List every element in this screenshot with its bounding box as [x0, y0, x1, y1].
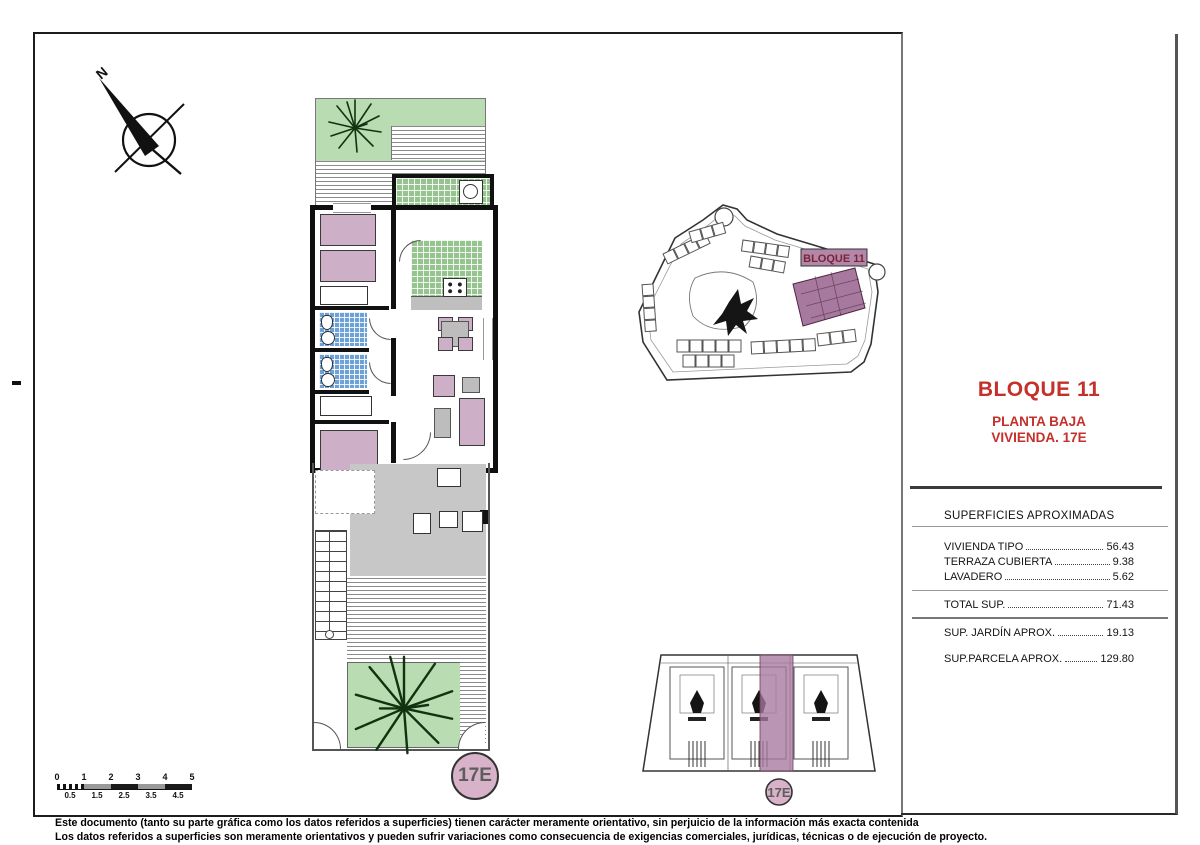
- agave-plant-icon: [349, 650, 459, 760]
- compass-north-label: N: [93, 64, 111, 83]
- wall: [315, 348, 369, 352]
- palm-tree-icon: [323, 94, 387, 158]
- scale-label: 3.5: [145, 791, 156, 800]
- floor-plan: 17E: [307, 90, 499, 806]
- scale-label: 2.5: [118, 791, 129, 800]
- wall: [391, 205, 396, 309]
- surface-label: TOTAL SUP.: [944, 599, 1005, 611]
- surface-value: 5.62: [1113, 571, 1134, 583]
- surface-row: TOTAL SUP. 71.43: [944, 599, 1134, 614]
- chair: [438, 337, 453, 351]
- stair-post: [325, 630, 334, 639]
- surface-row: TERRAZA CUBIERTA 9.38: [944, 556, 1134, 571]
- dot-leader: [1058, 635, 1103, 636]
- wardrobe: [320, 286, 368, 305]
- washing-machine-icon: [459, 180, 483, 204]
- fold-mark: [12, 381, 21, 385]
- wall: [315, 390, 369, 394]
- dot-leader: [1008, 607, 1103, 608]
- surface-value: 71.43: [1106, 599, 1134, 611]
- dot-leader: [1055, 564, 1109, 565]
- key-plan-badge: 17E: [767, 785, 790, 800]
- disclaimer-line: Los datos referidos a superficies son me…: [55, 831, 1165, 845]
- floor-label: PLANTA BAJA: [903, 414, 1175, 429]
- patio-table: [439, 511, 458, 528]
- surface-label: TERRAZA CUBIERTA: [944, 556, 1052, 568]
- dot-leader: [1065, 661, 1097, 662]
- surface-value: 9.38: [1113, 556, 1134, 568]
- surface-value: 129.80: [1100, 653, 1134, 665]
- bed: [320, 250, 376, 282]
- kitchen-counter: [411, 296, 482, 310]
- surface-label: SUP. JARDÍN APROX.: [944, 627, 1055, 639]
- key-plan-highlight: [760, 655, 793, 771]
- surface-row: SUP.PARCELA APROX. 129.80: [944, 653, 1134, 668]
- wardrobe: [320, 396, 372, 416]
- surfaces-total: TOTAL SUP. 71.43: [944, 599, 1134, 614]
- dot-leader: [1026, 549, 1103, 550]
- surfaces-header: SUPERFICIES APROXIMADAS: [944, 510, 1115, 522]
- patio-chair: [413, 513, 431, 534]
- compass-rose-icon: N: [87, 62, 197, 177]
- surface-value: 19.13: [1106, 627, 1134, 639]
- sink-icon: [321, 373, 335, 387]
- surfaces-extra: SUP.PARCELA APROX. 129.80: [944, 653, 1134, 668]
- window: [333, 203, 371, 213]
- scale-label: 5: [189, 772, 194, 782]
- surfaces-table: VIVIENDA TIPO 56.43 TERRAZA CUBIERTA 9.3…: [944, 541, 1134, 586]
- window: [483, 318, 493, 360]
- sofa: [459, 398, 485, 446]
- site-plan: BLOQUE 11: [625, 192, 897, 396]
- block-title: BLOQUE 11: [903, 378, 1175, 402]
- scale-label: 2: [108, 772, 113, 782]
- surface-label: SUP.PARCELA APROX.: [944, 653, 1062, 665]
- plan-sheet: N: [0, 0, 1200, 845]
- scale-bar: 0 1 2 3 4 5 0.5 1.5 2.5 3.5 4.5: [57, 772, 207, 804]
- disclaimer-line: Este documento (tanto su parte gráfica c…: [55, 817, 1165, 831]
- stair-rail: [329, 530, 330, 638]
- divider-thin: [912, 590, 1168, 591]
- surface-row: SUP. JARDÍN APROX. 19.13: [944, 627, 1134, 642]
- unit-badge: 17E: [451, 752, 499, 800]
- coffee-table: [434, 408, 451, 438]
- porch-dashed: [315, 470, 375, 514]
- wall: [315, 420, 389, 424]
- site-highlight-label: BLOQUE 11: [803, 253, 865, 265]
- scale-label: 0.5: [64, 791, 75, 800]
- stairs: [315, 530, 347, 640]
- scale-label: 1.5: [91, 791, 102, 800]
- drawing-frame: N: [33, 32, 903, 817]
- chair: [458, 337, 473, 351]
- terrace-hatch-upper: [391, 126, 485, 160]
- scale-label: 3: [135, 772, 140, 782]
- divider-thin: [912, 526, 1168, 527]
- surface-row: VIVIENDA TIPO 56.43: [944, 541, 1134, 556]
- dot-leader: [1005, 579, 1109, 580]
- toilet-icon: [321, 357, 333, 372]
- divider-thin: [912, 617, 1168, 619]
- surface-value: 56.43: [1106, 541, 1134, 553]
- surface-row: LAVADERO 5.62: [944, 571, 1134, 586]
- toilet-icon: [321, 315, 333, 330]
- surface-label: LAVADERO: [944, 571, 1002, 583]
- scale-label: 4: [162, 772, 167, 782]
- patio-chair: [437, 468, 461, 487]
- wall: [315, 306, 389, 310]
- armchair: [433, 375, 455, 397]
- wall: [391, 338, 396, 396]
- scale-label: 4.5: [172, 791, 183, 800]
- divider-thick: [910, 486, 1162, 489]
- surfaces-extra: SUP. JARDÍN APROX. 19.13: [944, 627, 1134, 642]
- scale-label: 1: [81, 772, 86, 782]
- unit-label: VIVIENDA. 17E: [903, 430, 1175, 445]
- side-table: [462, 377, 480, 393]
- key-plan: 17E: [635, 645, 880, 809]
- wall: [391, 422, 396, 463]
- patio-chair: [462, 511, 483, 532]
- disclaimer: Este documento (tanto su parte gráfica c…: [55, 817, 1165, 844]
- scale-label: 0: [54, 772, 59, 782]
- stove-icon: [443, 278, 467, 297]
- bed: [320, 214, 376, 246]
- surface-label: VIVIENDA TIPO: [944, 541, 1023, 553]
- sink-icon: [321, 331, 335, 345]
